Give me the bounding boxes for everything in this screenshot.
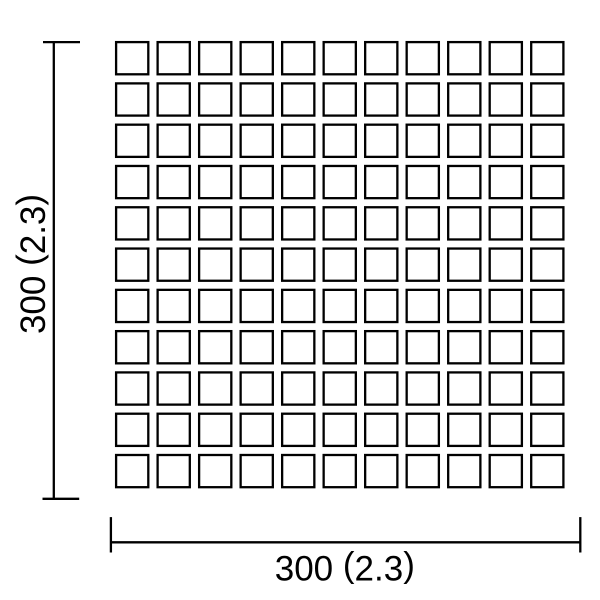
svg-text:300 (2.3): 300 (2.3): [10, 194, 53, 334]
svg-text:300 (2.3): 300 (2.3): [275, 546, 415, 589]
